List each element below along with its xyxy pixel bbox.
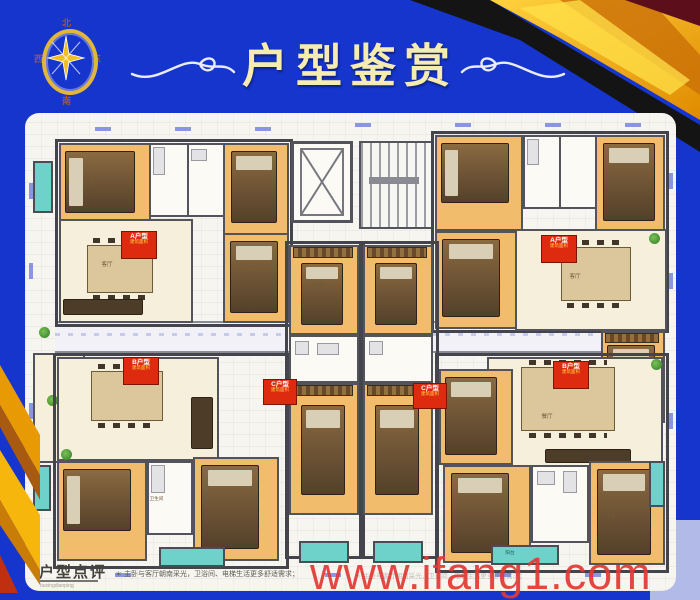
sofa <box>63 299 143 315</box>
room-label: 客厅 <box>101 259 112 267</box>
page-title: 户型鉴赏 <box>242 30 458 96</box>
unit-badge: C户型 建筑面积 <box>413 383 447 409</box>
bed <box>442 239 500 317</box>
plant-icon <box>39 327 50 338</box>
bed <box>301 263 343 325</box>
bed <box>65 151 135 213</box>
gold-corner-icon <box>0 365 64 600</box>
dimension-tick <box>255 127 271 131</box>
unit-badge-area: 建筑面积 <box>544 245 575 250</box>
flourish-left-icon <box>128 52 238 88</box>
plant-icon <box>649 233 660 244</box>
compass-star-icon <box>46 34 86 82</box>
unit-badge: C户型 建筑面积 <box>263 379 297 405</box>
wardrobe <box>605 333 659 343</box>
dimension-tick <box>175 127 191 131</box>
air-conditioner-ledge <box>649 461 665 507</box>
room-label: 卧室 <box>313 281 324 289</box>
wardrobe <box>293 385 353 396</box>
stairs-landing <box>369 177 419 184</box>
compass-south-label: 南 <box>62 94 71 107</box>
room-label: 餐厅 <box>541 411 552 419</box>
compass-north-label: 北 <box>62 16 71 29</box>
compass-icon: 北 西 东 南 <box>34 16 100 108</box>
bed <box>375 405 419 495</box>
dimension-tick <box>455 123 471 127</box>
bed <box>201 465 259 549</box>
bathtub-icon <box>153 147 165 175</box>
dimension-tick <box>545 123 561 127</box>
stairs-icon <box>359 141 433 229</box>
dimension-tick <box>669 413 673 429</box>
dimension-tick <box>669 173 673 189</box>
wardrobe <box>293 247 353 258</box>
bed <box>230 241 278 313</box>
bed <box>231 151 277 223</box>
dimension-tick <box>625 123 641 127</box>
bed <box>603 143 655 221</box>
unit-badge-area: 建筑面积 <box>416 393 445 398</box>
room-label: 主卧 <box>83 177 94 185</box>
balcony <box>159 547 225 567</box>
unit-badge-area: 建筑面积 <box>124 241 155 246</box>
unit-badge-area: 建筑面积 <box>126 367 157 372</box>
wardrobe <box>367 247 427 258</box>
flourish-right-icon <box>458 52 568 88</box>
unit-badge: B户型 建筑面积 <box>553 361 589 389</box>
toilet-icon <box>295 341 309 355</box>
kitchen <box>559 135 597 209</box>
bed <box>375 263 417 325</box>
room-label: 卫生间 <box>150 495 164 501</box>
elevator-icon <box>291 141 353 223</box>
dimension-tick <box>669 273 673 289</box>
unit-badge-area: 建筑面积 <box>556 371 587 376</box>
bathtub-icon <box>151 465 165 493</box>
unit-badge-area: 建筑面积 <box>266 389 295 394</box>
sink-icon <box>537 471 555 485</box>
room-label: 主卧 <box>605 511 616 519</box>
bed <box>63 469 131 531</box>
bathtub-icon <box>527 139 539 165</box>
washer-icon <box>563 471 577 493</box>
floorplan-panel: A户型 建筑面积 主卧 客厅 A户型 建筑面积 客厅 <box>25 113 676 591</box>
dimension-tick <box>29 183 33 199</box>
watermark: www.ifang1.com <box>310 548 652 600</box>
unit-badge: A户型 建筑面积 <box>541 235 577 263</box>
poster: 北 西 东 南 户型鉴赏 <box>0 0 700 600</box>
room-label: 客厅 <box>569 271 580 279</box>
unit-badge: A户型 建筑面积 <box>121 231 157 259</box>
dimension-tick <box>95 127 111 131</box>
sink-icon <box>191 149 207 161</box>
plant-icon <box>651 359 662 370</box>
unit-badge: B户型 建筑面积 <box>123 357 159 385</box>
bed <box>441 143 509 203</box>
dimension-tick <box>29 263 33 279</box>
sink-icon <box>317 343 339 355</box>
sofa <box>191 397 213 449</box>
toilet-icon <box>369 341 383 355</box>
balcony <box>33 161 53 213</box>
bed <box>445 377 497 455</box>
bed <box>451 473 509 553</box>
bed <box>301 405 345 495</box>
dimension-tick <box>355 123 371 127</box>
